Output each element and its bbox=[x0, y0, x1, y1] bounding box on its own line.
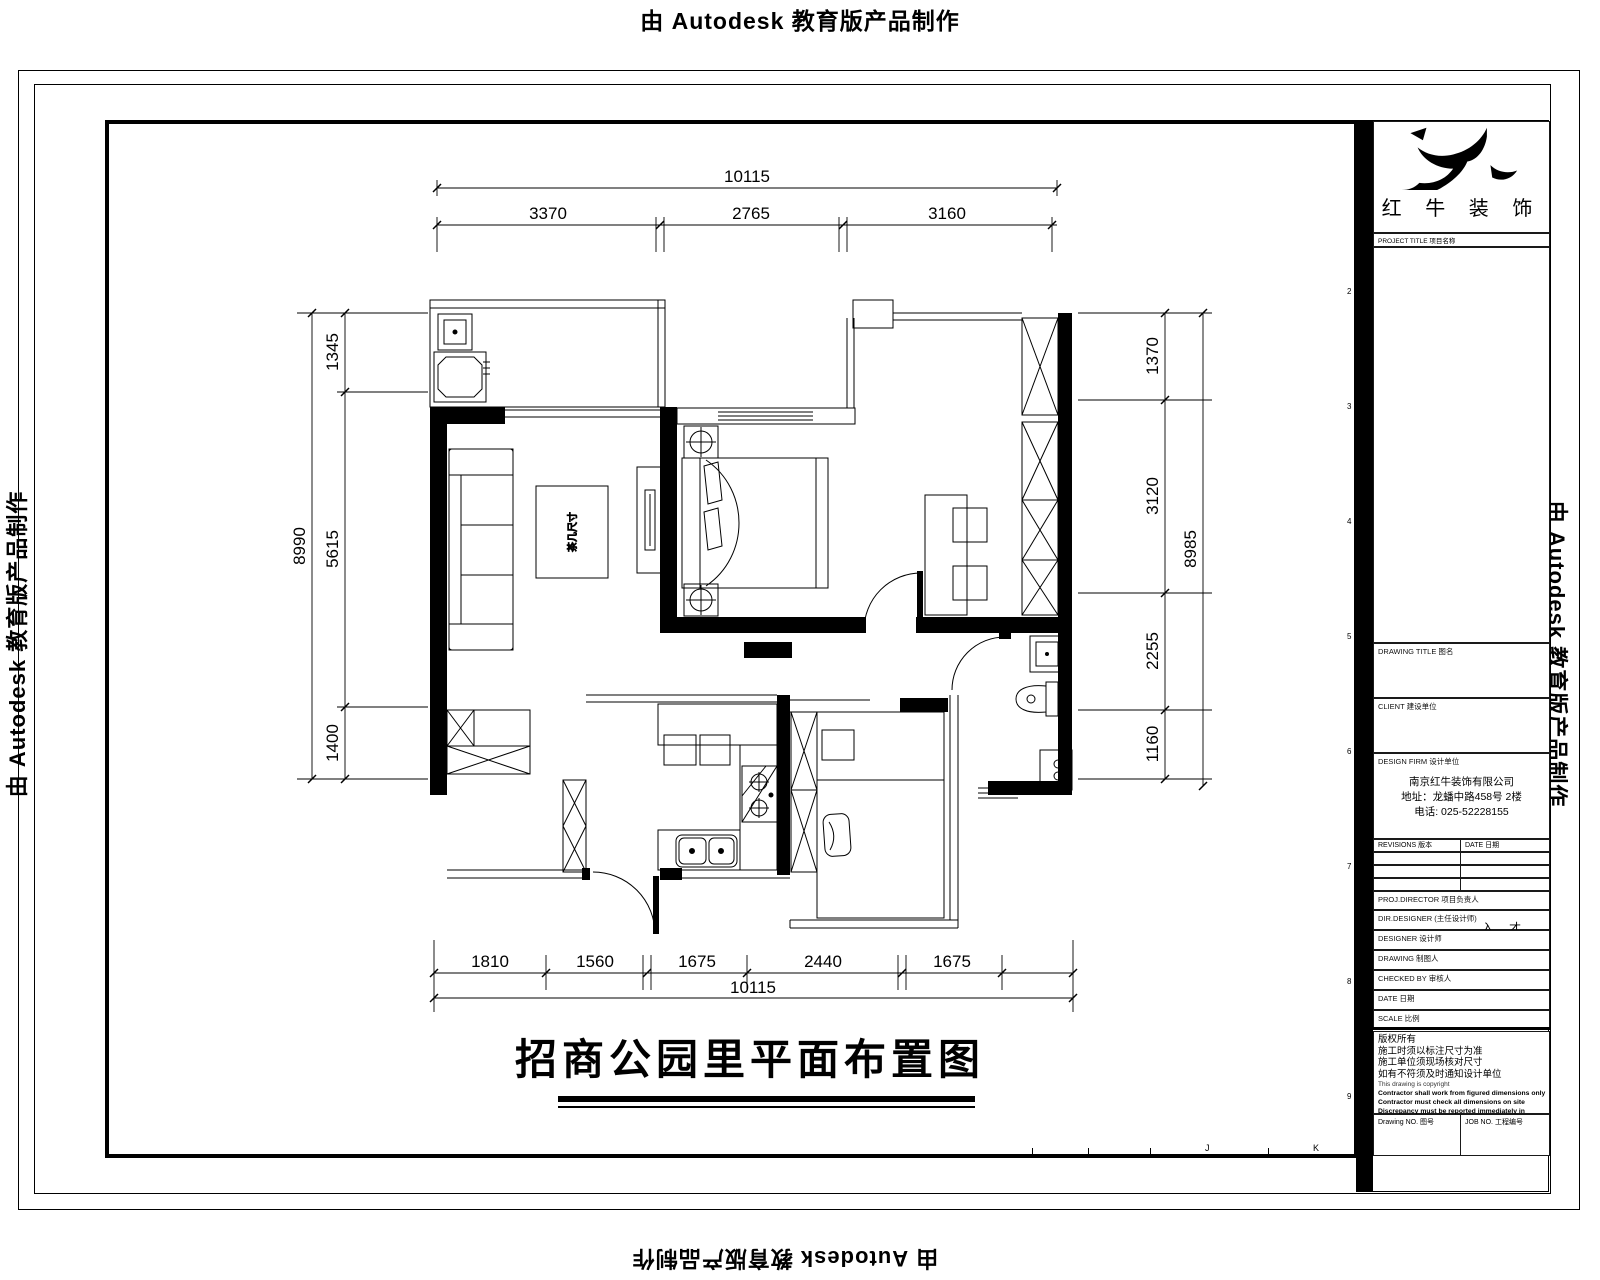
tv-cabinet bbox=[637, 467, 663, 573]
double-bed bbox=[682, 458, 828, 588]
wardrobe bbox=[1022, 318, 1058, 615]
bathroom-door bbox=[952, 631, 1011, 690]
watermark-suffix: 教育版产品制作 bbox=[792, 8, 960, 34]
revision-row bbox=[1373, 878, 1550, 891]
watermark-top: 由 Autodesk 教育版产品制作 bbox=[0, 2, 1600, 36]
drawing-title-box: DRAWING TITLE 图名 bbox=[1373, 643, 1550, 698]
dimension-left: 8990 1345 5615 1400 bbox=[290, 309, 428, 783]
title-block: 红 牛 装 饰 PROJECT TITLE 项目名称 DRAWING TITLE… bbox=[1372, 120, 1549, 1192]
field-design-director: DIR.DESIGNER (主任设计师) 入 才 bbox=[1373, 910, 1550, 930]
firm-address: 地址：龙蟠中路458号 2楼 bbox=[1374, 790, 1549, 805]
zone-letter: K bbox=[1313, 1144, 1319, 1153]
dining-stool bbox=[700, 735, 730, 765]
kitchen-counter bbox=[658, 704, 777, 745]
svg-text:1675: 1675 bbox=[933, 952, 971, 971]
zone-number: 7 bbox=[1347, 863, 1351, 871]
revision-row bbox=[1373, 865, 1550, 878]
sofa bbox=[449, 449, 513, 650]
firm-phone: 电话: 025-52228155 bbox=[1374, 805, 1549, 820]
zone-number: 2 bbox=[1347, 288, 1351, 296]
desk bbox=[925, 495, 987, 615]
coffee-table-label: 茶几尺寸 bbox=[566, 512, 579, 552]
title-block-divider bbox=[1356, 120, 1372, 1192]
svg-text:10115: 10115 bbox=[724, 167, 770, 186]
svg-text:1560: 1560 bbox=[576, 952, 614, 971]
field-drawing: DRAWING 制图人 bbox=[1373, 950, 1550, 970]
sheet: 由 Autodesk 教育版产品制作 由 Autodesk 教育版产品制作 由 … bbox=[0, 0, 1600, 1280]
dimension-bottom: 1810 1560 1675 2440 1675 10115 bbox=[430, 940, 1077, 1012]
svg-text:8985: 8985 bbox=[1181, 530, 1200, 568]
zone-number: 9 bbox=[1347, 1093, 1351, 1101]
bathroom-wall bbox=[950, 695, 958, 920]
field-checked-by: CHECKED BY 审核人 bbox=[1373, 970, 1550, 990]
zone-number: 8 bbox=[1347, 978, 1351, 986]
zone-number: 5 bbox=[1347, 633, 1351, 641]
svg-text:1675: 1675 bbox=[678, 952, 716, 971]
single-bed bbox=[817, 712, 944, 918]
nightstand bbox=[684, 426, 718, 458]
revisions-header: REVISIONS 版本 DATE 日期 bbox=[1373, 839, 1550, 852]
balcony bbox=[430, 300, 665, 407]
kitchen bbox=[586, 695, 790, 878]
svg-text:1810: 1810 bbox=[471, 952, 509, 971]
tall-cabinet bbox=[563, 780, 586, 872]
plan-title-underline-thin bbox=[558, 1106, 975, 1108]
svg-text:1400: 1400 bbox=[323, 724, 342, 762]
bedroom-window-wall bbox=[677, 300, 1022, 424]
kitchen-sink bbox=[676, 835, 737, 867]
nightstand bbox=[684, 584, 718, 616]
bedside-table bbox=[822, 730, 854, 760]
watermark-brand: Autodesk bbox=[672, 8, 785, 34]
drawing-no-box: Drawing NO. 图号 JOB NO. 工程编号 bbox=[1373, 1114, 1550, 1156]
notes-box: 版权所有 施工时须以标注尺寸为准 施工单位须现场核对尺寸 如有不符须及时通知设计… bbox=[1373, 1031, 1550, 1114]
design-firm-box: DESIGN FIRM 设计单位 南京红牛装饰有限公司 地址：龙蟠中路458号 … bbox=[1373, 753, 1550, 839]
svg-text:2255: 2255 bbox=[1143, 632, 1162, 670]
field-scale: SCALE 比例 bbox=[1373, 1010, 1550, 1028]
watermark-prefix: 由 bbox=[640, 8, 664, 34]
svg-text:3370: 3370 bbox=[529, 204, 567, 223]
zone-tick bbox=[1150, 1148, 1151, 1156]
zone-tick bbox=[1268, 1148, 1269, 1156]
zone-number: 4 bbox=[1347, 518, 1351, 526]
svg-text:1345: 1345 bbox=[323, 333, 342, 371]
bedroom-door bbox=[864, 571, 923, 631]
dimension-top: 10115 3370 2765 3160 bbox=[433, 167, 1061, 252]
zone-letter: J bbox=[1205, 1144, 1210, 1153]
rednbull-logo-icon bbox=[1387, 126, 1537, 190]
dining-stool bbox=[664, 735, 696, 765]
zone-tick bbox=[1032, 1148, 1033, 1156]
entry bbox=[447, 710, 659, 934]
revision-row bbox=[1373, 852, 1550, 865]
company-logo-text: 红 牛 装 饰 bbox=[1374, 192, 1549, 221]
floor-plan: 茶几尺寸 bbox=[280, 150, 1230, 1020]
bedroom2 bbox=[790, 700, 958, 928]
logo-box: 红 牛 装 饰 bbox=[1373, 121, 1550, 233]
toilet bbox=[1016, 682, 1058, 716]
project-title-label-row: PROJECT TITLE 项目名称 bbox=[1373, 233, 1550, 247]
entry-door bbox=[593, 872, 659, 934]
desk-chair bbox=[953, 566, 987, 600]
svg-text:10115: 10115 bbox=[730, 978, 776, 997]
svg-text:1160: 1160 bbox=[1143, 726, 1162, 763]
svg-text:3120: 3120 bbox=[1143, 477, 1162, 515]
coffee-table: 茶几尺寸 bbox=[536, 486, 608, 578]
gas-stove bbox=[742, 766, 777, 822]
svg-text:1370: 1370 bbox=[1143, 337, 1162, 375]
pillow bbox=[823, 813, 852, 857]
svg-text:3160: 3160 bbox=[928, 204, 966, 223]
walls bbox=[430, 313, 1072, 880]
dimension-right: 1370 3120 2255 1160 8985 bbox=[1078, 309, 1212, 790]
field-project-director: PROJ.DIRECTOR 项目负责人 bbox=[1373, 891, 1550, 910]
firm-name: 南京红牛装饰有限公司 bbox=[1374, 775, 1549, 790]
plan-title-underline bbox=[558, 1096, 975, 1102]
balcony-slider-window bbox=[505, 410, 660, 417]
desk-chair bbox=[953, 508, 987, 542]
svg-text:2765: 2765 bbox=[732, 204, 770, 223]
wardrobe bbox=[791, 712, 817, 872]
client-box: CLIENT 建设单位 bbox=[1373, 698, 1550, 753]
field-designer: DESIGNER 设计师 bbox=[1373, 930, 1550, 950]
watermark-bottom: 由 Autodesk 教育版产品制作 bbox=[0, 1244, 1570, 1276]
zone-number: 3 bbox=[1347, 403, 1351, 411]
zone-tick bbox=[1088, 1148, 1089, 1156]
svg-text:2440: 2440 bbox=[804, 952, 842, 971]
svg-text:5615: 5615 bbox=[323, 530, 342, 568]
zone-number: 6 bbox=[1347, 748, 1351, 756]
balcony-sink bbox=[438, 314, 472, 350]
thick-separator bbox=[1373, 1027, 1550, 1030]
svg-text:8990: 8990 bbox=[290, 527, 309, 565]
project-name-box bbox=[1373, 247, 1550, 643]
plan-title: 招商公园里平面布置图 bbox=[480, 1026, 1020, 1087]
field-date: DATE 日期 bbox=[1373, 990, 1550, 1010]
washing-machine bbox=[434, 352, 490, 402]
